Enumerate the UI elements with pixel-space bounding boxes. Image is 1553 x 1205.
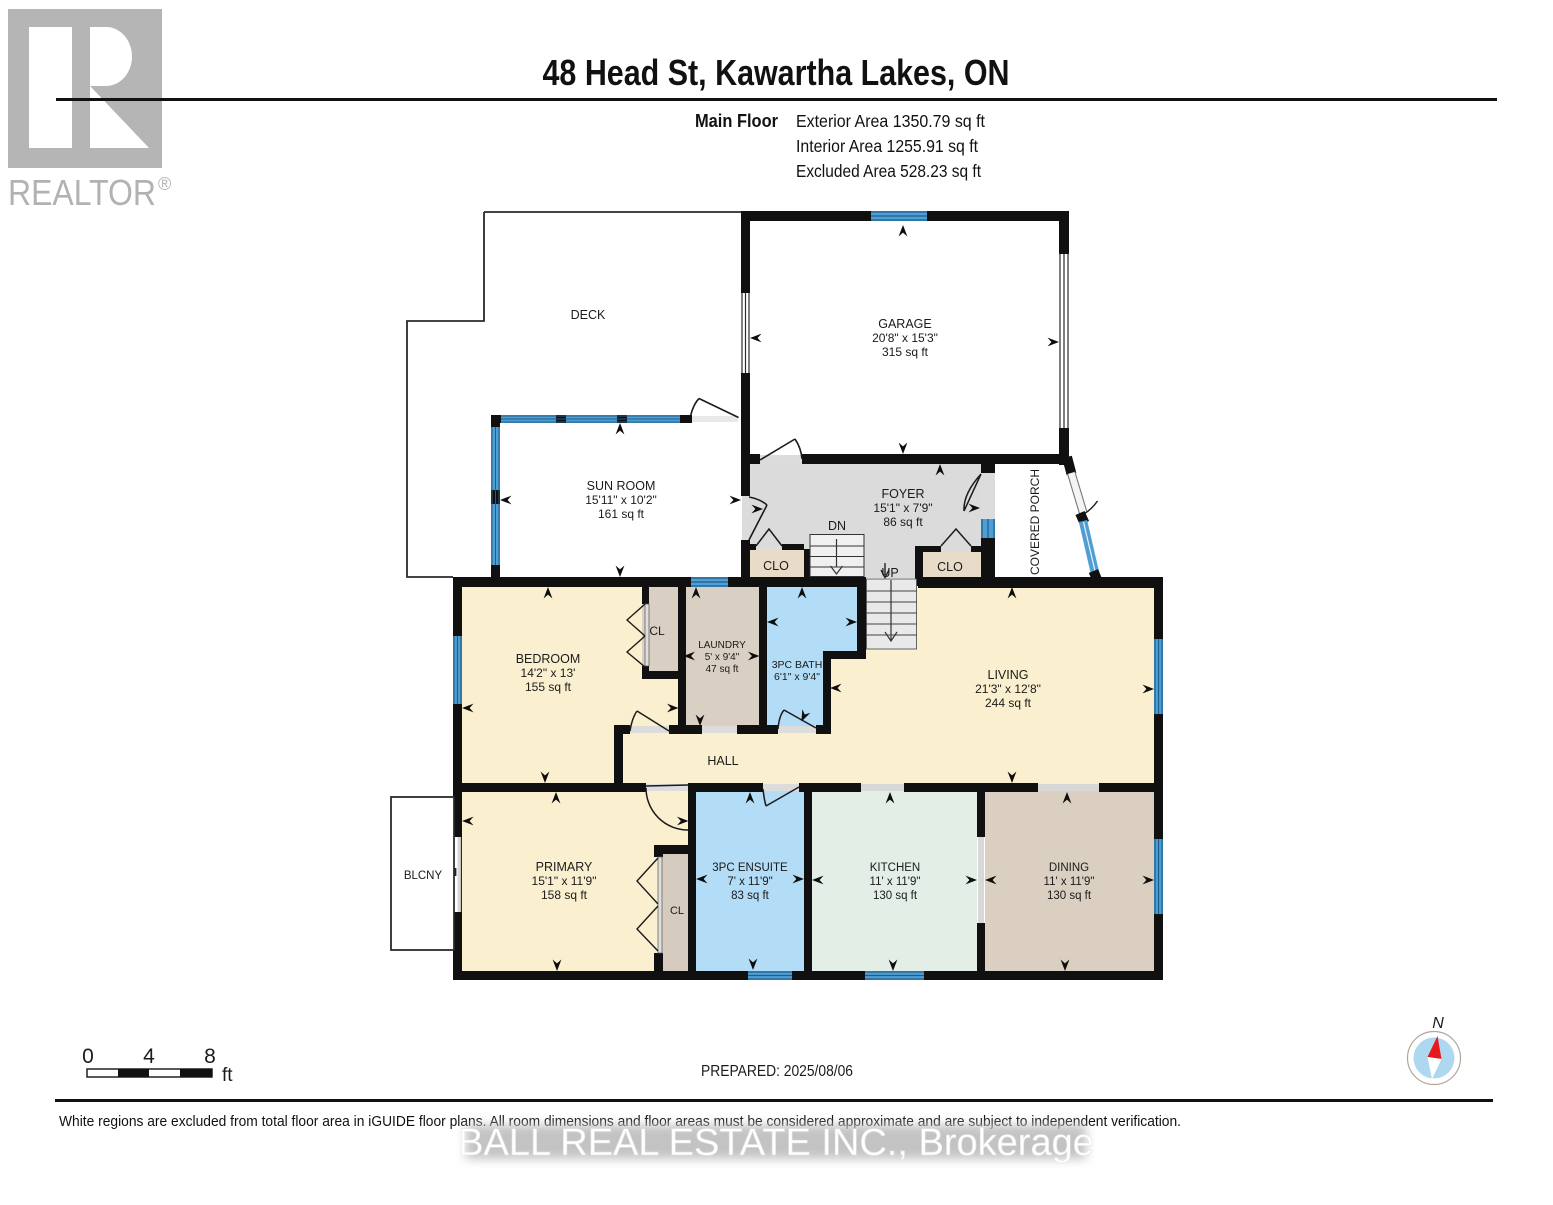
svg-text:155 sq ft: 155 sq ft <box>525 680 572 694</box>
svg-text:LAUNDRY: LAUNDRY <box>698 640 746 651</box>
svg-text:5' x 9'4": 5' x 9'4" <box>705 652 740 663</box>
svg-text:Exterior Area 1350.79 sq ft: Exterior Area 1350.79 sq ft <box>796 111 985 131</box>
svg-text:3PC BATH: 3PC BATH <box>772 659 823 671</box>
svg-text:20'8" x 15'3": 20'8" x 15'3" <box>872 331 938 345</box>
svg-text:BALL REAL ESTATE INC., Brokera: BALL REAL ESTATE INC., Brokerage <box>458 1122 1094 1164</box>
svg-text:LIVING: LIVING <box>988 668 1029 682</box>
svg-text:315 sq ft: 315 sq ft <box>882 345 929 359</box>
svg-text:3PC ENSUITE: 3PC ENSUITE <box>712 862 788 874</box>
svg-text:161 sq ft: 161 sq ft <box>598 507 645 521</box>
svg-text:130 sq ft: 130 sq ft <box>873 890 918 902</box>
svg-text:6'1" x 9'4": 6'1" x 9'4" <box>774 671 820 683</box>
svg-text:ft: ft <box>222 1065 233 1086</box>
svg-text:GARAGE: GARAGE <box>878 317 932 331</box>
svg-text:47 sq ft: 47 sq ft <box>706 664 739 675</box>
svg-text:11' x 11'9": 11' x 11'9" <box>1044 876 1095 888</box>
svg-text:DECK: DECK <box>571 308 606 322</box>
svg-text:KITCHEN: KITCHEN <box>870 862 920 874</box>
svg-text:UP: UP <box>881 566 898 580</box>
svg-text:Interior Area 1255.91 sq ft: Interior Area 1255.91 sq ft <box>796 136 978 156</box>
svg-text:130 sq ft: 130 sq ft <box>1047 890 1092 902</box>
svg-text:®: ® <box>158 174 171 194</box>
svg-text:158 sq ft: 158 sq ft <box>541 888 588 902</box>
svg-text:0: 0 <box>82 1045 94 1068</box>
svg-text:FOYER: FOYER <box>881 487 924 501</box>
svg-text:8: 8 <box>204 1045 216 1068</box>
svg-text:COVERED PORCH: COVERED PORCH <box>1028 469 1042 575</box>
svg-text:15'11" x 10'2": 15'11" x 10'2" <box>585 493 657 507</box>
svg-text:BEDROOM: BEDROOM <box>516 652 581 666</box>
svg-text:BLCNY: BLCNY <box>404 870 443 882</box>
svg-text:DINING: DINING <box>1049 862 1089 874</box>
svg-text:CLO: CLO <box>937 560 963 574</box>
svg-text:14'2" x 13': 14'2" x 13' <box>521 666 576 680</box>
svg-text:15'1" x 11'9": 15'1" x 11'9" <box>532 874 597 888</box>
svg-text:4: 4 <box>143 1045 155 1068</box>
svg-text:DN: DN <box>828 519 846 533</box>
svg-text:REALTOR: REALTOR <box>8 172 156 213</box>
svg-text:N: N <box>1432 1015 1444 1032</box>
svg-text:21'3" x 12'8": 21'3" x 12'8" <box>975 682 1041 696</box>
svg-text:15'1" x 7'9": 15'1" x 7'9" <box>873 501 932 515</box>
svg-text:244 sq ft: 244 sq ft <box>985 696 1032 710</box>
svg-text:CLO: CLO <box>763 559 789 573</box>
svg-text:Excluded Area 528.23 sq ft: Excluded Area 528.23 sq ft <box>796 161 981 181</box>
svg-text:48 Head St, Kawartha Lakes, ON: 48 Head St, Kawartha Lakes, ON <box>543 52 1010 93</box>
svg-text:CL: CL <box>649 624 665 638</box>
svg-text:HALL: HALL <box>707 754 738 768</box>
svg-text:CL: CL <box>670 905 684 917</box>
svg-text:SUN ROOM: SUN ROOM <box>587 479 656 493</box>
svg-text:7' x 11'9": 7' x 11'9" <box>727 876 772 888</box>
svg-text:PRIMARY: PRIMARY <box>536 860 593 874</box>
svg-text:83 sq ft: 83 sq ft <box>731 890 770 902</box>
svg-text:11' x 11'9": 11' x 11'9" <box>870 876 921 888</box>
svg-text:Main Floor: Main Floor <box>695 111 778 131</box>
svg-text:86 sq ft: 86 sq ft <box>883 515 923 529</box>
svg-text:PREPARED: 2025/08/06: PREPARED: 2025/08/06 <box>701 1063 853 1080</box>
